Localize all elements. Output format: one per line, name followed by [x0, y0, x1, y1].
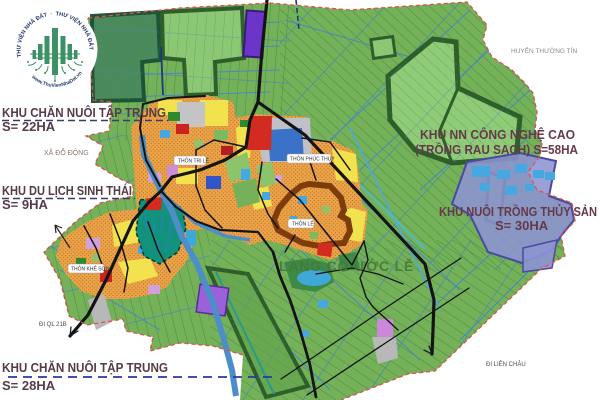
svg-text:KHU NN CÔNG NGHỆ CAO: KHU NN CÔNG NGHỆ CAO — [420, 127, 575, 142]
svg-text:KHU CHĂN NUÔI TẬP TRUNG: KHU CHĂN NUÔI TẬP TRUNG — [2, 105, 166, 120]
svg-text:KHU NUÔI TRỒNG THỦY SẢN: KHU NUÔI TRỒNG THỦY SẢN — [439, 204, 597, 219]
svg-text:HUYỆN THƯỜNG TÍN: HUYỆN THƯỜNG TÍN — [511, 46, 577, 55]
svg-text:THÔN PHÚC THỤY: THÔN PHÚC THỤY — [290, 156, 335, 163]
svg-text:THÔN LỄ: THÔN LỄ — [292, 221, 314, 228]
svg-text:LÀNG CỔ ƯỚC LỄ: LÀNG CỔ ƯỚC LỄ — [279, 257, 414, 274]
svg-text:S= 28HA: S= 28HA — [2, 378, 56, 393]
svg-text:ĐI QL 21B: ĐI QL 21B — [39, 322, 67, 328]
svg-text:XÃ ĐỖ ĐỘNG: XÃ ĐỖ ĐỘNG — [44, 148, 89, 157]
svg-text:KHU DU LỊCH SINH THÁI: KHU DU LỊCH SINH THÁI — [2, 183, 132, 198]
svg-text:KHU CHĂN NUÔI TẬP TRUNG: KHU CHĂN NUÔI TẬP TRUNG — [2, 360, 168, 375]
svg-text:THÔN TRI LỄ: THÔN TRI LỄ — [178, 158, 210, 165]
svg-text:ĐI LIÊN CHÂU: ĐI LIÊN CHÂU — [486, 360, 526, 368]
svg-text:THÔN KHÊ SƠN: THÔN KHÊ SƠN — [71, 265, 110, 273]
svg-text:S= 30HA: S= 30HA — [495, 218, 549, 233]
svg-text:(TRỒNG RAU SẠCH) S=58HA: (TRỒNG RAU SẠCH) S=58HA — [415, 142, 579, 157]
